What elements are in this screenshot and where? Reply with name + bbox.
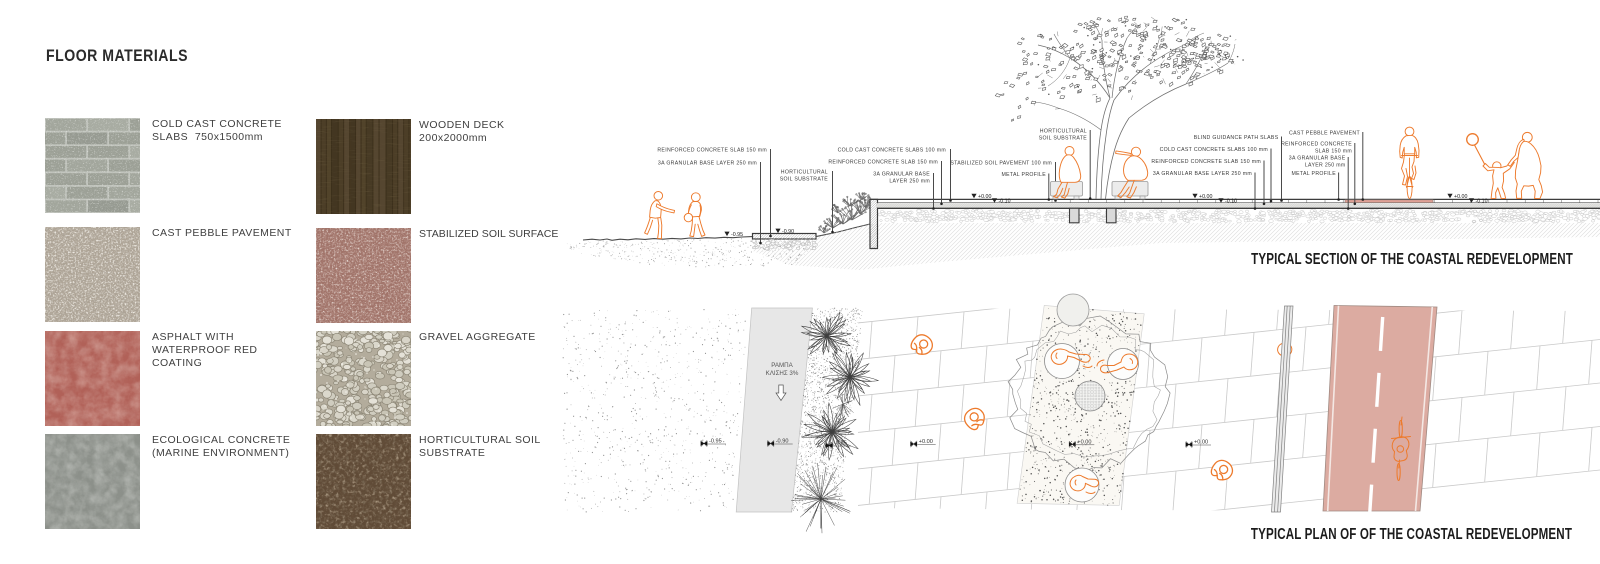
svg-text:STABILIZED SOIL PAVEMENT 100 m: STABILIZED SOIL PAVEMENT 100 mm	[950, 161, 1052, 167]
svg-text:3A GRANULAR BASE LAYER 250 mm: 3A GRANULAR BASE LAYER 250 mm	[658, 161, 757, 167]
svg-text:-0.10: -0.10	[1225, 199, 1237, 205]
svg-text:+0.00: +0.00	[978, 194, 991, 200]
svg-text:REINFORCED CONCRETE SLAB 150 m: REINFORCED CONCRETE SLAB 150 mm	[1151, 159, 1261, 165]
svg-text:+0.00: +0.00	[1199, 194, 1212, 200]
svg-text:-0.90: -0.90	[776, 439, 789, 445]
svg-text:METAL PROFILE: METAL PROFILE	[1001, 172, 1046, 178]
svg-text:3A GRANULAR BASE LAYER 250 mm: 3A GRANULAR BASE LAYER 250 mm	[1153, 171, 1252, 177]
svg-text:+0.00: +0.00	[1194, 440, 1208, 446]
svg-text:+0.00: +0.00	[919, 439, 933, 445]
svg-text:-0.10: -0.10	[999, 199, 1011, 205]
svg-text:ΡΑΜΠΑ: ΡΑΜΠΑ	[771, 362, 793, 369]
svg-text:REINFORCED CONCRETE: REINFORCED CONCRETE	[1281, 142, 1352, 148]
svg-text:CAST PEBBLE PAVEMENT: CAST PEBBLE PAVEMENT	[1289, 131, 1360, 137]
svg-text:LAYER 250 mm: LAYER 250 mm	[889, 178, 930, 184]
svg-text:-0.90: -0.90	[782, 229, 794, 235]
svg-text:-0.95: -0.95	[731, 232, 743, 238]
svg-text:3A GRANULAR BASE: 3A GRANULAR BASE	[1289, 156, 1346, 162]
svg-text:SOIL SUBSTRATE: SOIL SUBSTRATE	[1039, 135, 1088, 141]
svg-text:REINFORCED CONCRETE SLAB 150 m: REINFORCED CONCRETE SLAB 150 mm	[657, 148, 767, 154]
svg-text:METAL PROFILE: METAL PROFILE	[1291, 171, 1336, 177]
svg-text:LAYER 250 mm: LAYER 250 mm	[1305, 162, 1346, 168]
svg-text:REINFORCED CONCRETE SLAB 150 m: REINFORCED CONCRETE SLAB 150 mm	[828, 160, 938, 166]
svg-text:SOIL SUBSTRATE: SOIL SUBSTRATE	[780, 176, 829, 182]
svg-text:3A GRANULAR BASE: 3A GRANULAR BASE	[873, 172, 930, 178]
svg-text:+0.00: +0.00	[1077, 439, 1091, 445]
svg-text:COLD CAST CONCRETE SLABS 100 m: COLD CAST CONCRETE SLABS 100 mm	[838, 148, 946, 154]
svg-text:HORTICULTURAL: HORTICULTURAL	[1040, 129, 1087, 135]
svg-text:-0.10: -0.10	[1476, 199, 1488, 205]
svg-text:HORTICULTURAL: HORTICULTURAL	[781, 170, 828, 176]
svg-text:SLAB 150 mm: SLAB 150 mm	[1315, 148, 1352, 154]
svg-text:COLD CAST CONCRETE SLABS 100 m: COLD CAST CONCRETE SLABS 100 mm	[1160, 147, 1268, 153]
svg-text:BLIND GUIDANCE PATH SLABS: BLIND GUIDANCE PATH SLABS	[1194, 135, 1279, 141]
svg-text:-0.95: -0.95	[709, 439, 722, 445]
svg-text:-0.85: -0.85	[834, 441, 847, 447]
svg-text:ΚΛΙΣΗΣ 3%: ΚΛΙΣΗΣ 3%	[766, 370, 799, 377]
svg-text:+0.00: +0.00	[1454, 194, 1467, 200]
